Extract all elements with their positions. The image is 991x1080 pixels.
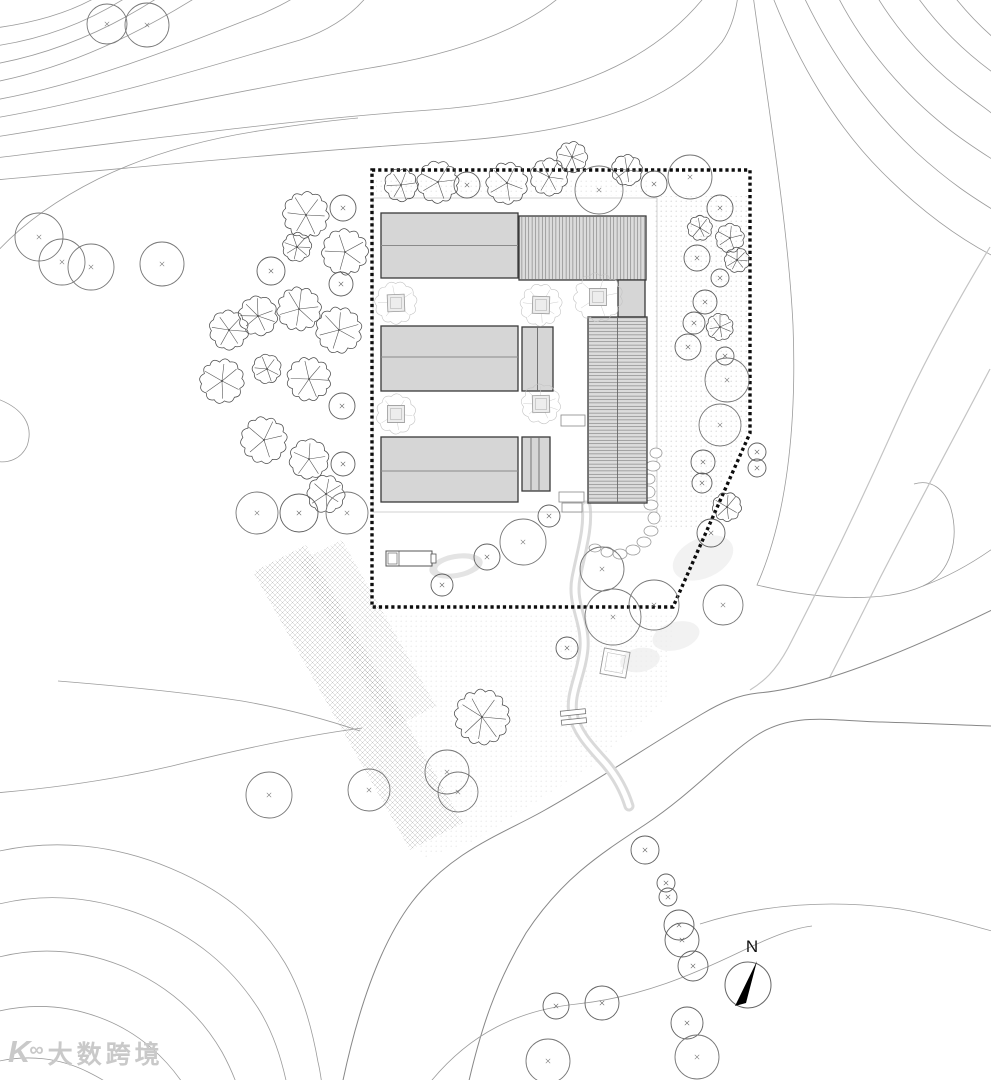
entry-steps	[562, 503, 582, 512]
tree-canopy	[665, 923, 699, 957]
watermark-logo-icon: K∞	[8, 1036, 41, 1067]
building-wing-e	[588, 317, 647, 503]
contour-line	[0, 118, 358, 254]
tree-deciduous	[283, 232, 312, 261]
planter	[532, 296, 550, 314]
contour-line	[0, 0, 738, 180]
tree-canopy	[703, 585, 743, 625]
contour-line	[772, 0, 991, 257]
contour-line	[700, 904, 991, 931]
tree-deciduous	[252, 354, 281, 383]
tree-canopy	[140, 242, 184, 286]
building-barn-ne	[519, 216, 646, 280]
north-arrow: N	[725, 937, 771, 1008]
tree-canopy	[748, 443, 766, 461]
tree-canopy	[329, 272, 353, 296]
tree-canopy	[671, 1007, 703, 1039]
contour-line	[0, 0, 162, 64]
tree-deciduous	[283, 192, 330, 239]
tree-deciduous	[289, 439, 329, 479]
contour-line	[0, 728, 362, 793]
watermark-text: 大数跨境	[48, 1040, 164, 1070]
stepping-stone	[637, 537, 651, 547]
buildings	[381, 213, 647, 512]
contour-line	[916, 0, 991, 74]
tree-canopy	[125, 3, 169, 47]
tree-canopy	[678, 951, 708, 981]
tree-canopy	[538, 505, 560, 527]
shrub-mass	[666, 526, 741, 589]
tree-canopy	[500, 519, 546, 565]
stepping-stone	[644, 526, 658, 536]
tree-canopy	[236, 492, 278, 534]
tree-deciduous	[200, 359, 245, 404]
tree-deciduous	[557, 141, 588, 172]
building-barn-sw	[381, 437, 518, 502]
gravel-texture	[376, 180, 648, 196]
tree-canopy	[280, 494, 318, 532]
tree-canopy	[748, 459, 766, 477]
site-plan-page: { "watermark": { "logo_k": "K", "logo_oo…	[0, 0, 991, 1080]
building-hall-s	[522, 437, 550, 491]
contour-line	[803, 0, 991, 211]
entry-steps	[561, 415, 585, 426]
tree-deciduous	[307, 475, 345, 512]
tree-deciduous	[277, 287, 322, 331]
tree-canopy	[668, 155, 712, 199]
contour-line	[0, 398, 29, 462]
tree-canopy	[585, 986, 619, 1020]
tree-deciduous	[238, 296, 277, 336]
contour-line	[0, 0, 298, 100]
tree-canopy	[331, 452, 355, 476]
planter	[589, 288, 606, 305]
stepping-stone	[601, 547, 613, 557]
tree-canopy	[39, 239, 85, 285]
building-link-e	[618, 280, 645, 317]
contour-line	[953, 0, 991, 39]
hillside-road-band	[750, 247, 990, 692]
planter	[387, 405, 404, 422]
tree-canopy	[526, 1039, 570, 1080]
contour-line	[837, 0, 991, 161]
stepping-stone	[646, 461, 660, 471]
contour-line	[0, 0, 100, 28]
tree-canopy	[246, 772, 292, 818]
tree-canopy	[543, 993, 569, 1019]
building-hall-c	[522, 327, 553, 391]
planter-tree	[376, 394, 415, 434]
building-barn-w	[381, 326, 518, 391]
contour-line	[0, 0, 130, 46]
tree-canopy	[675, 1035, 719, 1079]
tree-canopy	[631, 836, 659, 864]
contour-line	[753, 0, 954, 598]
tree-deciduous	[241, 417, 288, 464]
tree-canopy	[257, 257, 285, 285]
building-barn-nw	[381, 213, 518, 278]
stepping-stone	[648, 512, 660, 524]
tree-canopy	[659, 888, 677, 906]
trees	[15, 3, 766, 1080]
entry-steps	[559, 492, 584, 502]
stepping-stone	[626, 545, 640, 555]
tree-canopy	[326, 492, 368, 534]
planter-tree	[520, 284, 562, 326]
contour-line	[0, 0, 706, 158]
planter	[387, 294, 405, 312]
site-plan-drawing: N	[0, 0, 991, 1080]
tree-deciduous	[287, 358, 330, 401]
watermark: K∞ 大数跨境	[8, 1036, 164, 1070]
planter-tree	[375, 282, 417, 324]
contour-line	[58, 681, 360, 731]
hill-road-edge	[750, 247, 990, 690]
stepping-stone	[650, 448, 662, 458]
tree-canopy	[329, 393, 355, 419]
contour-line	[0, 0, 368, 118]
tree-canopy	[87, 4, 127, 44]
tree-canopy	[68, 244, 114, 290]
tree-canopy	[330, 195, 356, 221]
tree-deciduous	[316, 307, 362, 353]
tree-deciduous	[321, 229, 368, 275]
tree-canopy	[15, 213, 63, 261]
stepping-stone	[613, 549, 627, 559]
planter	[532, 395, 550, 413]
north-label: N	[746, 937, 758, 956]
bench-end	[431, 554, 436, 563]
